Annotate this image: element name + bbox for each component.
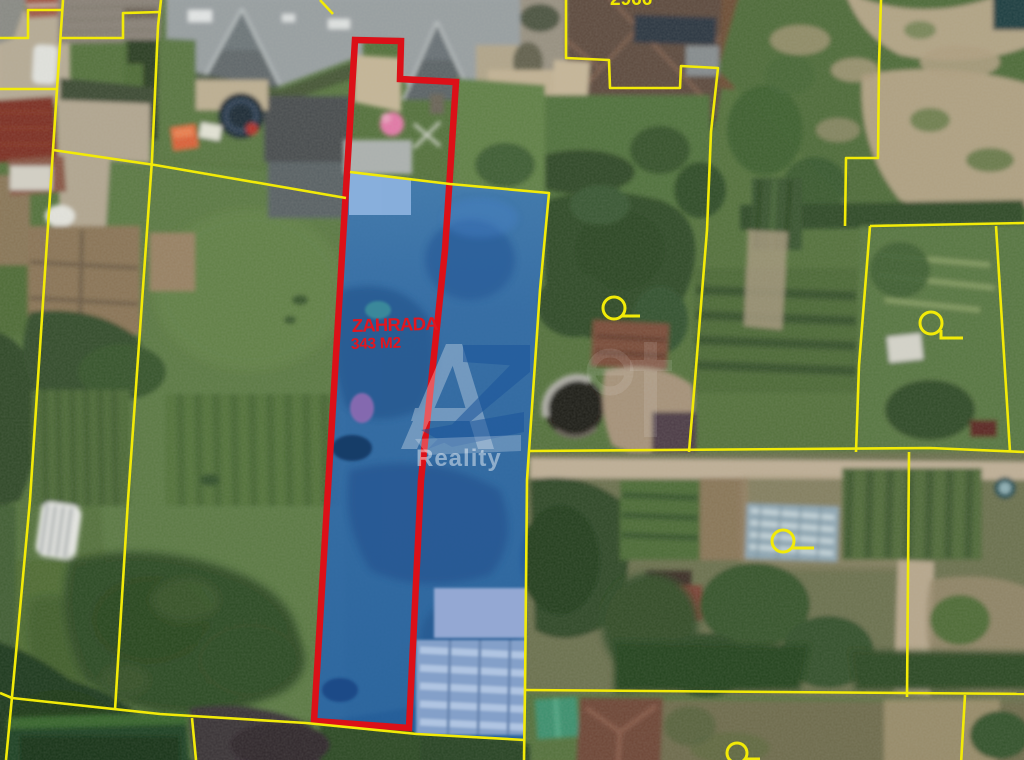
- svg-text:2966: 2966: [610, 0, 652, 10]
- svg-text:Reality: Reality: [416, 445, 502, 472]
- svg-text:ZAHRADA: ZAHRADA: [352, 313, 439, 336]
- svg-text:343 M2: 343 M2: [351, 335, 401, 353]
